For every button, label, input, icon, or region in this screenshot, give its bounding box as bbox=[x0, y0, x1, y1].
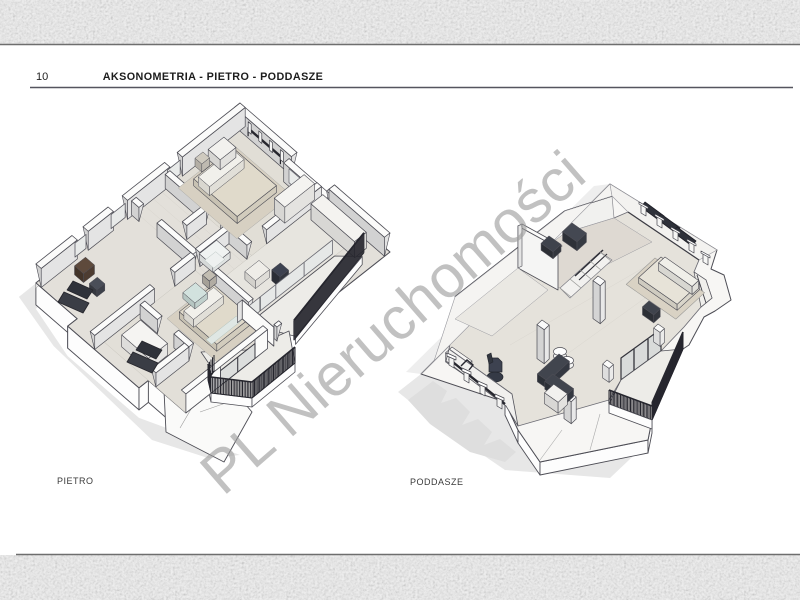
svg-text:AKSONOMETRIA - PIETRO - PODDAS: AKSONOMETRIA - PIETRO - PODDASZE bbox=[103, 71, 324, 83]
svg-text:10: 10 bbox=[36, 71, 48, 83]
svg-text:PODDASZE: PODDASZE bbox=[410, 477, 464, 487]
svg-text:PIETRO: PIETRO bbox=[57, 476, 94, 486]
